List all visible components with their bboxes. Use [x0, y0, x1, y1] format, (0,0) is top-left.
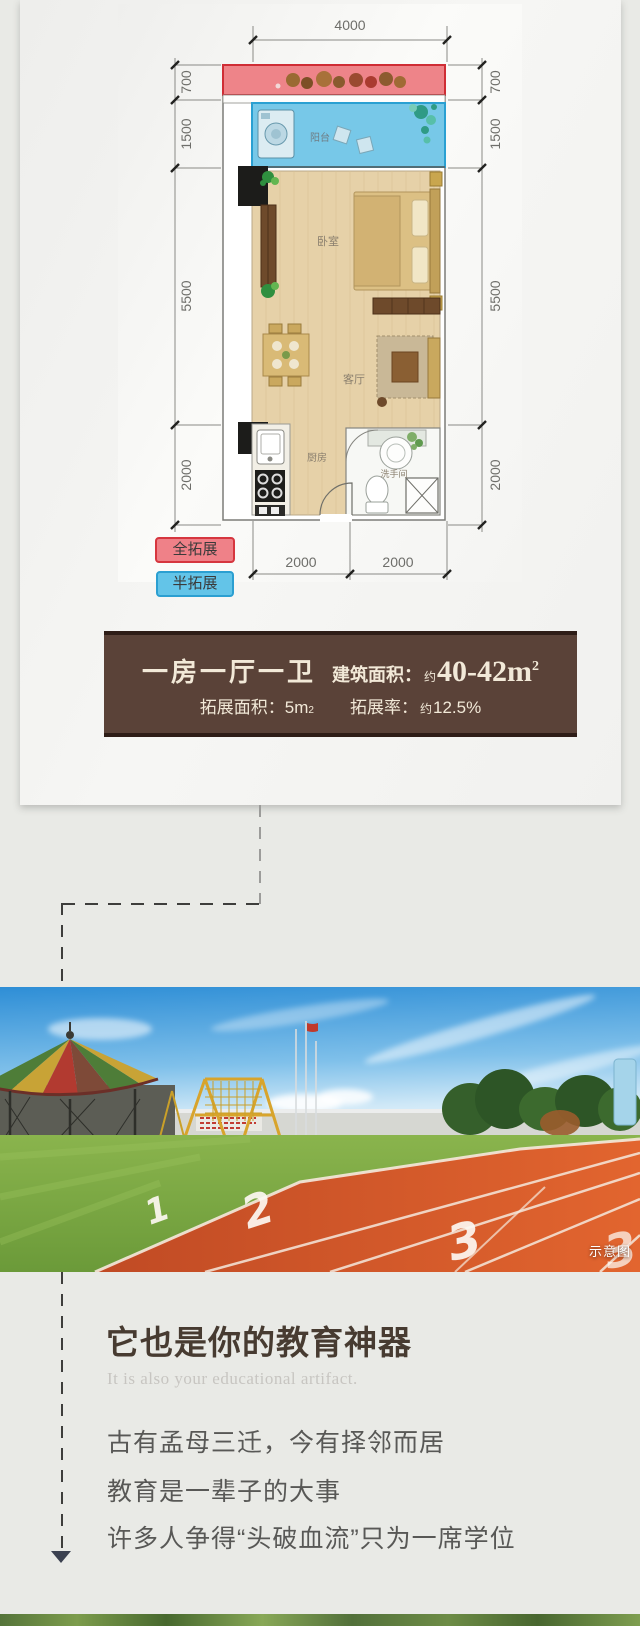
- built-area-approx: 约: [424, 668, 436, 685]
- dim-right-5500: 5500: [487, 280, 503, 311]
- dim-right-1500: 1500: [487, 118, 503, 149]
- floor-plan-drawing: 4000 700 1500 5500 2000 700 1500 5500 20…: [130, 0, 530, 592]
- watermark-label: 示意图: [589, 1241, 631, 1260]
- dashed-line-horizontal: [62, 903, 260, 905]
- room-label-balcony: 阳台: [310, 131, 330, 144]
- dim-bottom-left: 2000: [285, 554, 316, 570]
- full-expansion-zone: [223, 65, 445, 95]
- legend-full-expansion: 全拓展: [155, 537, 235, 563]
- dim-left-1500: 1500: [178, 118, 194, 149]
- dashed-line-vertical-top: [259, 805, 261, 904]
- built-area-value: 40-42m2: [437, 655, 539, 689]
- dashed-line-vertical-mid: [61, 903, 63, 987]
- section-line-1: 古有孟母三迁，今有择邻而居: [107, 1423, 445, 1459]
- built-area-label: 建筑面积：: [332, 661, 422, 687]
- dim-left-2000: 2000: [178, 459, 194, 490]
- dim-left-5500: 5500: [178, 280, 194, 311]
- column-top: [238, 166, 268, 206]
- room-label-bedroom: 卧室: [317, 234, 339, 248]
- dim-right-2000: 2000: [487, 459, 503, 490]
- dim-bottom-right: 2000: [382, 554, 413, 570]
- dim-left-700: 700: [178, 70, 194, 94]
- section-line-3: 许多人争得“头破血流”只为一席学位: [107, 1519, 516, 1555]
- legend-full-label: 全拓展: [172, 541, 217, 558]
- room-label-living: 客厅: [343, 372, 365, 386]
- wall-band: [223, 95, 445, 103]
- unit-type: 一房一厅一卫: [142, 652, 316, 689]
- dim-right-700: 700: [487, 70, 503, 94]
- next-photo-sliver: [0, 1614, 640, 1626]
- legend-half-expansion: 半拓展: [156, 571, 234, 597]
- room-label-kitchen: 厨房: [307, 451, 327, 464]
- section-title: 它也是你的教育神器: [106, 1316, 412, 1364]
- red-flag: [307, 1023, 318, 1032]
- down-arrow-icon: [51, 1551, 71, 1563]
- unit-info-row2: 拓展面积： 5m2 拓展率： 约 12.5%: [104, 693, 577, 718]
- expand-area: 拓展面积： 5m2: [200, 693, 314, 718]
- half-expansion-balcony: 阳台: [252, 103, 445, 167]
- blue-structure: [614, 1059, 636, 1125]
- expand-rate: 拓展率： 约 12.5%: [350, 693, 481, 718]
- promo-page: 4000 700 1500 5500 2000 700 1500 5500 20…: [0, 0, 640, 1626]
- school-field-photo: 1 2 3 3 示意图: [0, 987, 640, 1272]
- dashed-line-vertical-bottom: [61, 1272, 63, 1548]
- unit-info-row1: 一房一厅一卫 建筑面积： 约 40-42m2: [104, 652, 577, 689]
- unit-info-box: 一房一厅一卫 建筑面积： 约 40-42m2 拓展面积： 5m2 拓展率： 约 …: [104, 631, 577, 737]
- bathroom: 洗手间: [346, 428, 440, 515]
- dim-top: 4000: [334, 17, 365, 33]
- section-subtitle: It is also your educational artifact.: [107, 1369, 358, 1389]
- school-field-illustration: 1 2 3 3: [0, 987, 640, 1272]
- room-label-bathroom: 洗手间: [380, 468, 407, 479]
- section-line-2: 教育是一辈子的大事: [107, 1472, 341, 1508]
- floor-plan-card: 4000 700 1500 5500 2000 700 1500 5500 20…: [20, 0, 621, 805]
- legend-half-label: 半拓展: [172, 575, 217, 592]
